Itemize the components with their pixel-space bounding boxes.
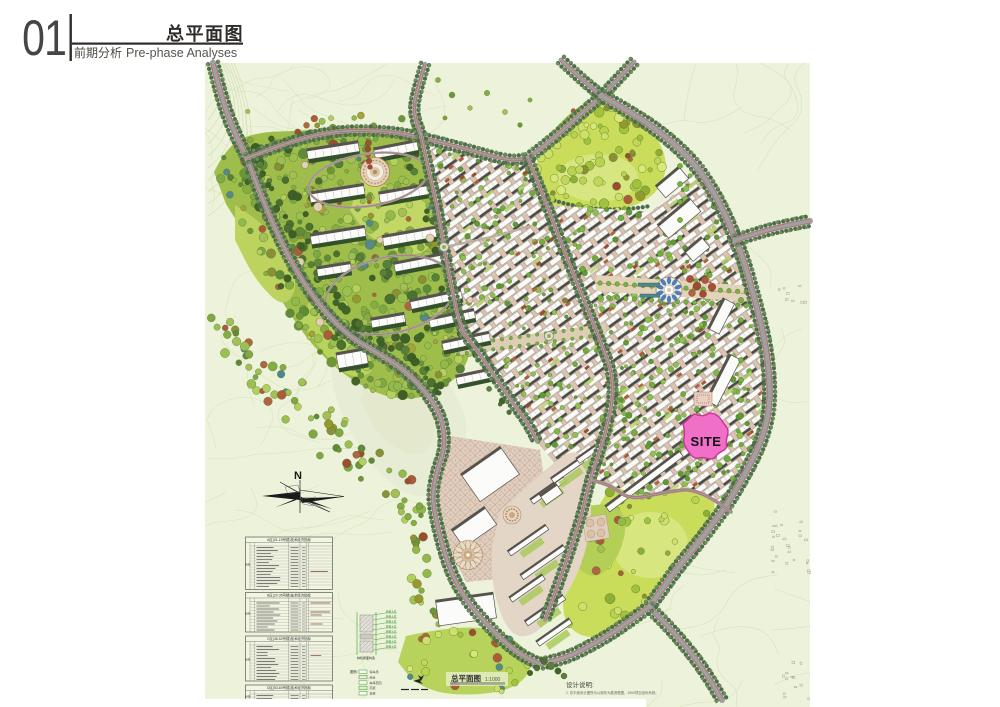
svg-text:商业: 商业: [370, 674, 376, 679]
svg-text:前期分析: 前期分析: [74, 45, 122, 60]
svg-text:用地: 用地: [245, 695, 251, 699]
svg-text:多层: 多层: [370, 691, 376, 696]
svg-text:用地: 用地: [245, 611, 251, 615]
svg-text:种植土层: 种植土层: [386, 620, 397, 624]
svg-text:种植土层: 种植土层: [386, 630, 397, 634]
svg-text:B区(20-35号楼)技术经济指标: B区(20-35号楼)技术经济指标: [267, 593, 311, 598]
svg-text:总平面图: 总平面图: [166, 23, 244, 44]
svg-text:种植土层: 种植土层: [386, 625, 397, 629]
svg-text:种植土层: 种植土层: [386, 635, 397, 639]
svg-text:种植土层: 种植土层: [386, 645, 397, 649]
svg-text:停车场: 停车场: [370, 669, 379, 674]
svg-text:Pre-phase Analyses: Pre-phase Analyses: [126, 46, 237, 60]
svg-text:N: N: [294, 470, 302, 482]
svg-text:总平面图: 总平面图: [451, 673, 481, 683]
svg-text:高层: 高层: [370, 685, 376, 690]
svg-text:1. 总平面设计图所示以现状为勘测根据，1900项目坐标系统: 1. 总平面设计图所示以现状为勘测根据，1900项目坐标系统。: [566, 690, 659, 695]
svg-text:种植屋面构造: 种植屋面构造: [357, 655, 375, 660]
svg-text:01: 01: [22, 10, 66, 66]
svg-text:设计说明:: 设计说明:: [566, 680, 594, 689]
svg-text:种植土层: 种植土层: [386, 615, 397, 619]
svg-text:车库范围: 车库范围: [370, 680, 382, 685]
svg-text:种植土层: 种植土层: [386, 610, 397, 614]
svg-text:用地: 用地: [245, 658, 251, 662]
svg-text:种植土层: 种植土层: [386, 640, 397, 644]
svg-text:用地: 用地: [245, 562, 251, 566]
svg-text:C区(36-52号楼)技术经济指标: C区(36-52号楼)技术经济指标: [267, 636, 312, 641]
svg-text:D区(53-60号楼)技术经济指标: D区(53-60号楼)技术经济指标: [267, 685, 312, 690]
svg-text:A区(01-19号楼)技术经济指标: A区(01-19号楼)技术经济指标: [267, 537, 311, 542]
svg-text:1:1000: 1:1000: [485, 677, 501, 683]
svg-text:SITE: SITE: [691, 434, 722, 449]
svg-text:图例:: 图例:: [350, 669, 358, 674]
